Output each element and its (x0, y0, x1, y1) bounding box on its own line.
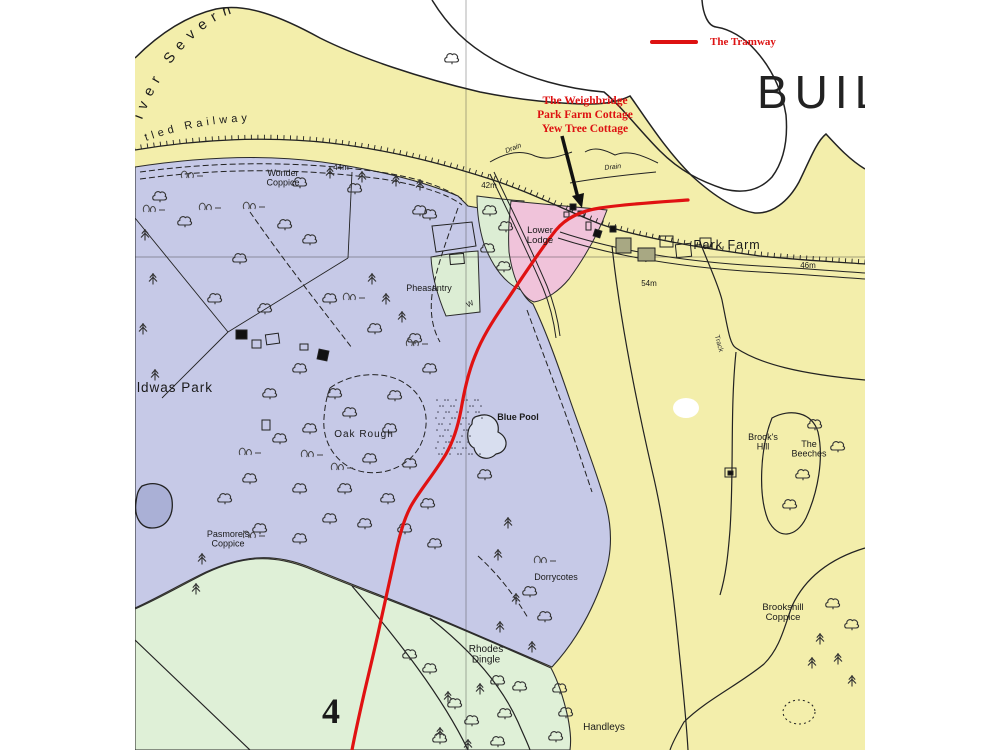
map-label-blue-pool: Blue Pool (497, 412, 539, 422)
building (616, 238, 631, 253)
building (570, 204, 576, 210)
buildwas-tramway-map: iver Severn tled Railway The TramwayThe … (0, 0, 1000, 750)
map-label-buildwas-park: ldwas Park (137, 380, 213, 395)
page-margin-right (865, 0, 1000, 750)
map-label-pasmores-coppice: Pasmore'sCoppice (207, 529, 250, 548)
map-label-spot-height-44m: 44m (333, 163, 349, 172)
map-label-spot-height-42m: 42m (481, 181, 497, 190)
building (317, 349, 329, 361)
park-pond (136, 484, 173, 528)
map-label-park-farm: Park Farm (693, 238, 760, 252)
map-label-rhodes-dingle: RhodesDingle (469, 644, 503, 666)
scan-artifact-blob (673, 398, 699, 418)
map-label-grid-number-4: 4 (322, 691, 340, 731)
map-label-pheasantry: Pheasantry (406, 283, 452, 293)
map-label-spot-height-46m: 46m (800, 261, 816, 270)
map-page: iver Severn tled Railway The TramwayThe … (0, 0, 1000, 750)
building (728, 471, 733, 475)
map-label-dorrycotes: Dorrycotes (534, 572, 578, 582)
building (638, 248, 655, 261)
map-label-annotation-line-2: Park Farm Cottage (537, 109, 633, 121)
map-label-oak-rough: Oak Rough (334, 429, 394, 440)
map-label-lower-lodge: LowerLodge (527, 225, 553, 246)
building (236, 330, 247, 339)
map-label-legend-tramway: The Tramway (710, 36, 776, 48)
map-label-wonder-coppice: WonderCoppice (266, 168, 299, 187)
map-label-spot-height-54m: 54m (641, 279, 657, 288)
page-margin-left (0, 0, 135, 750)
map-label-annotation-line-1: The Weighbridge (542, 95, 627, 107)
map-label-handleys: Handleys (583, 722, 625, 733)
building (593, 229, 602, 238)
map-label-brookshill-coppice: BrookshillCoppice (762, 602, 803, 623)
building (610, 226, 616, 232)
map-label-annotation-line-3: Yew Tree Cottage (542, 123, 628, 135)
